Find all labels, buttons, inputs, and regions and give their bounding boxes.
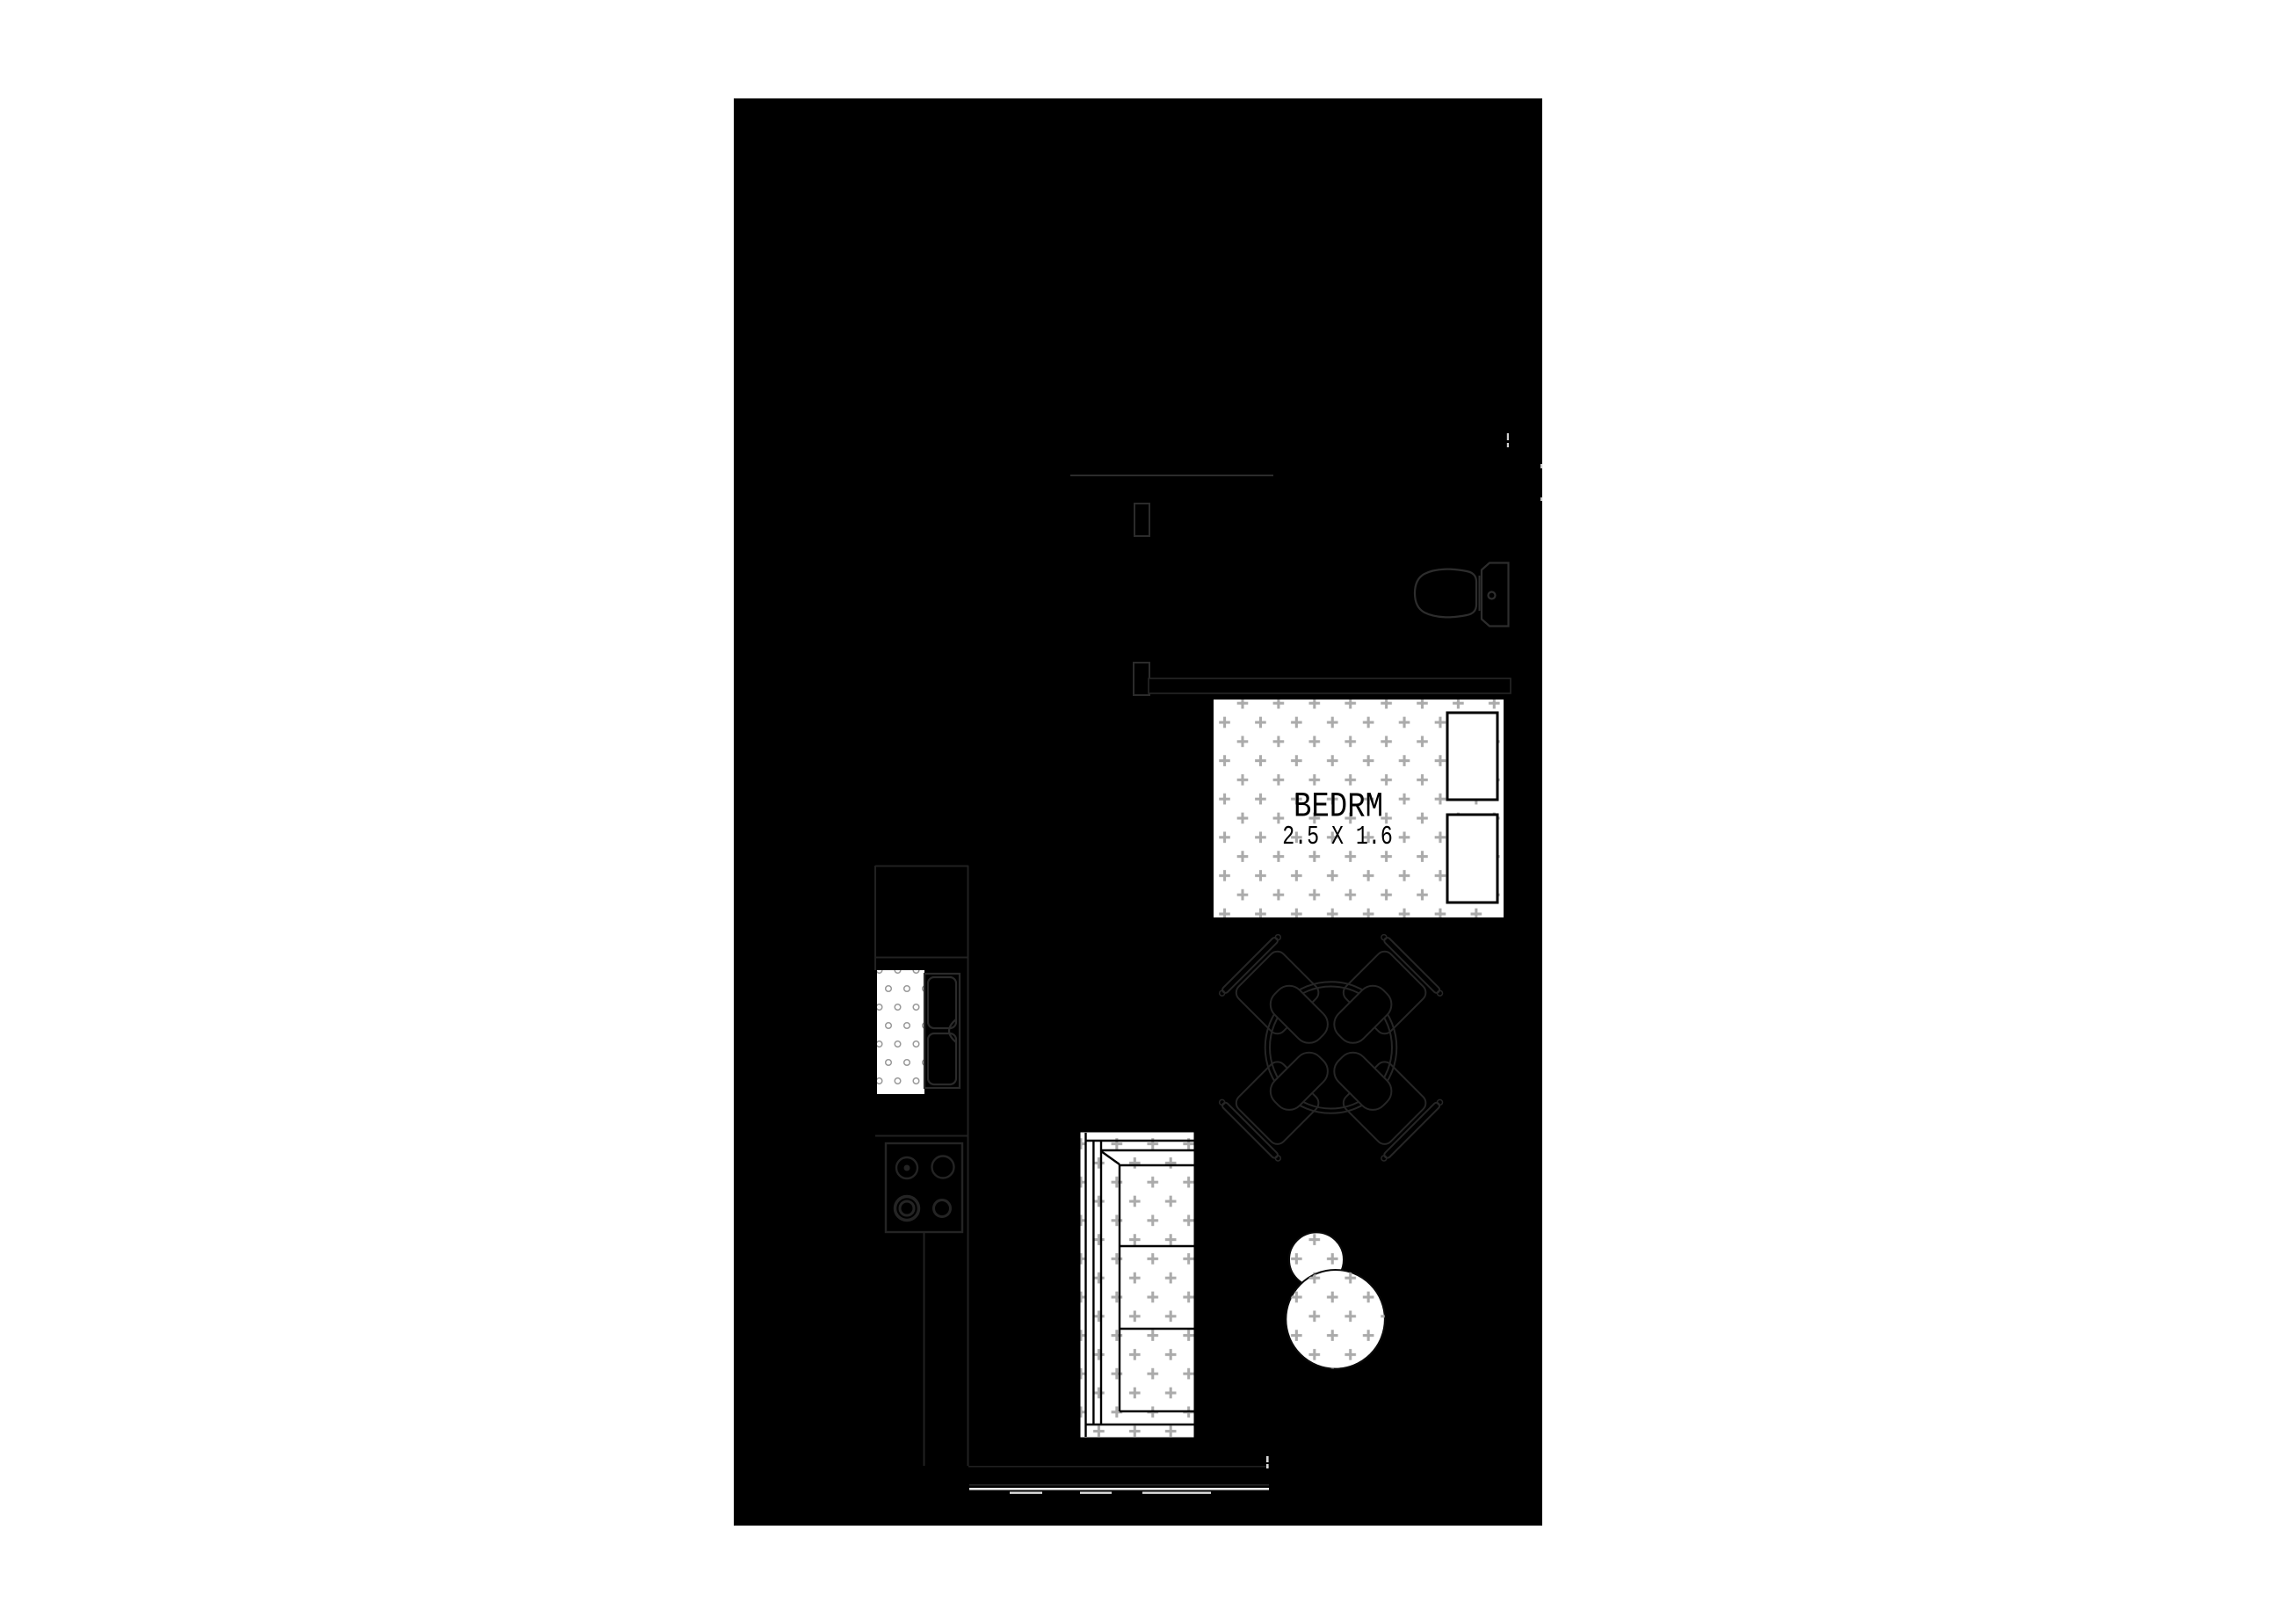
svg-text:2.5 X 1.6: 2.5 X 1.6 [1282,822,1393,852]
